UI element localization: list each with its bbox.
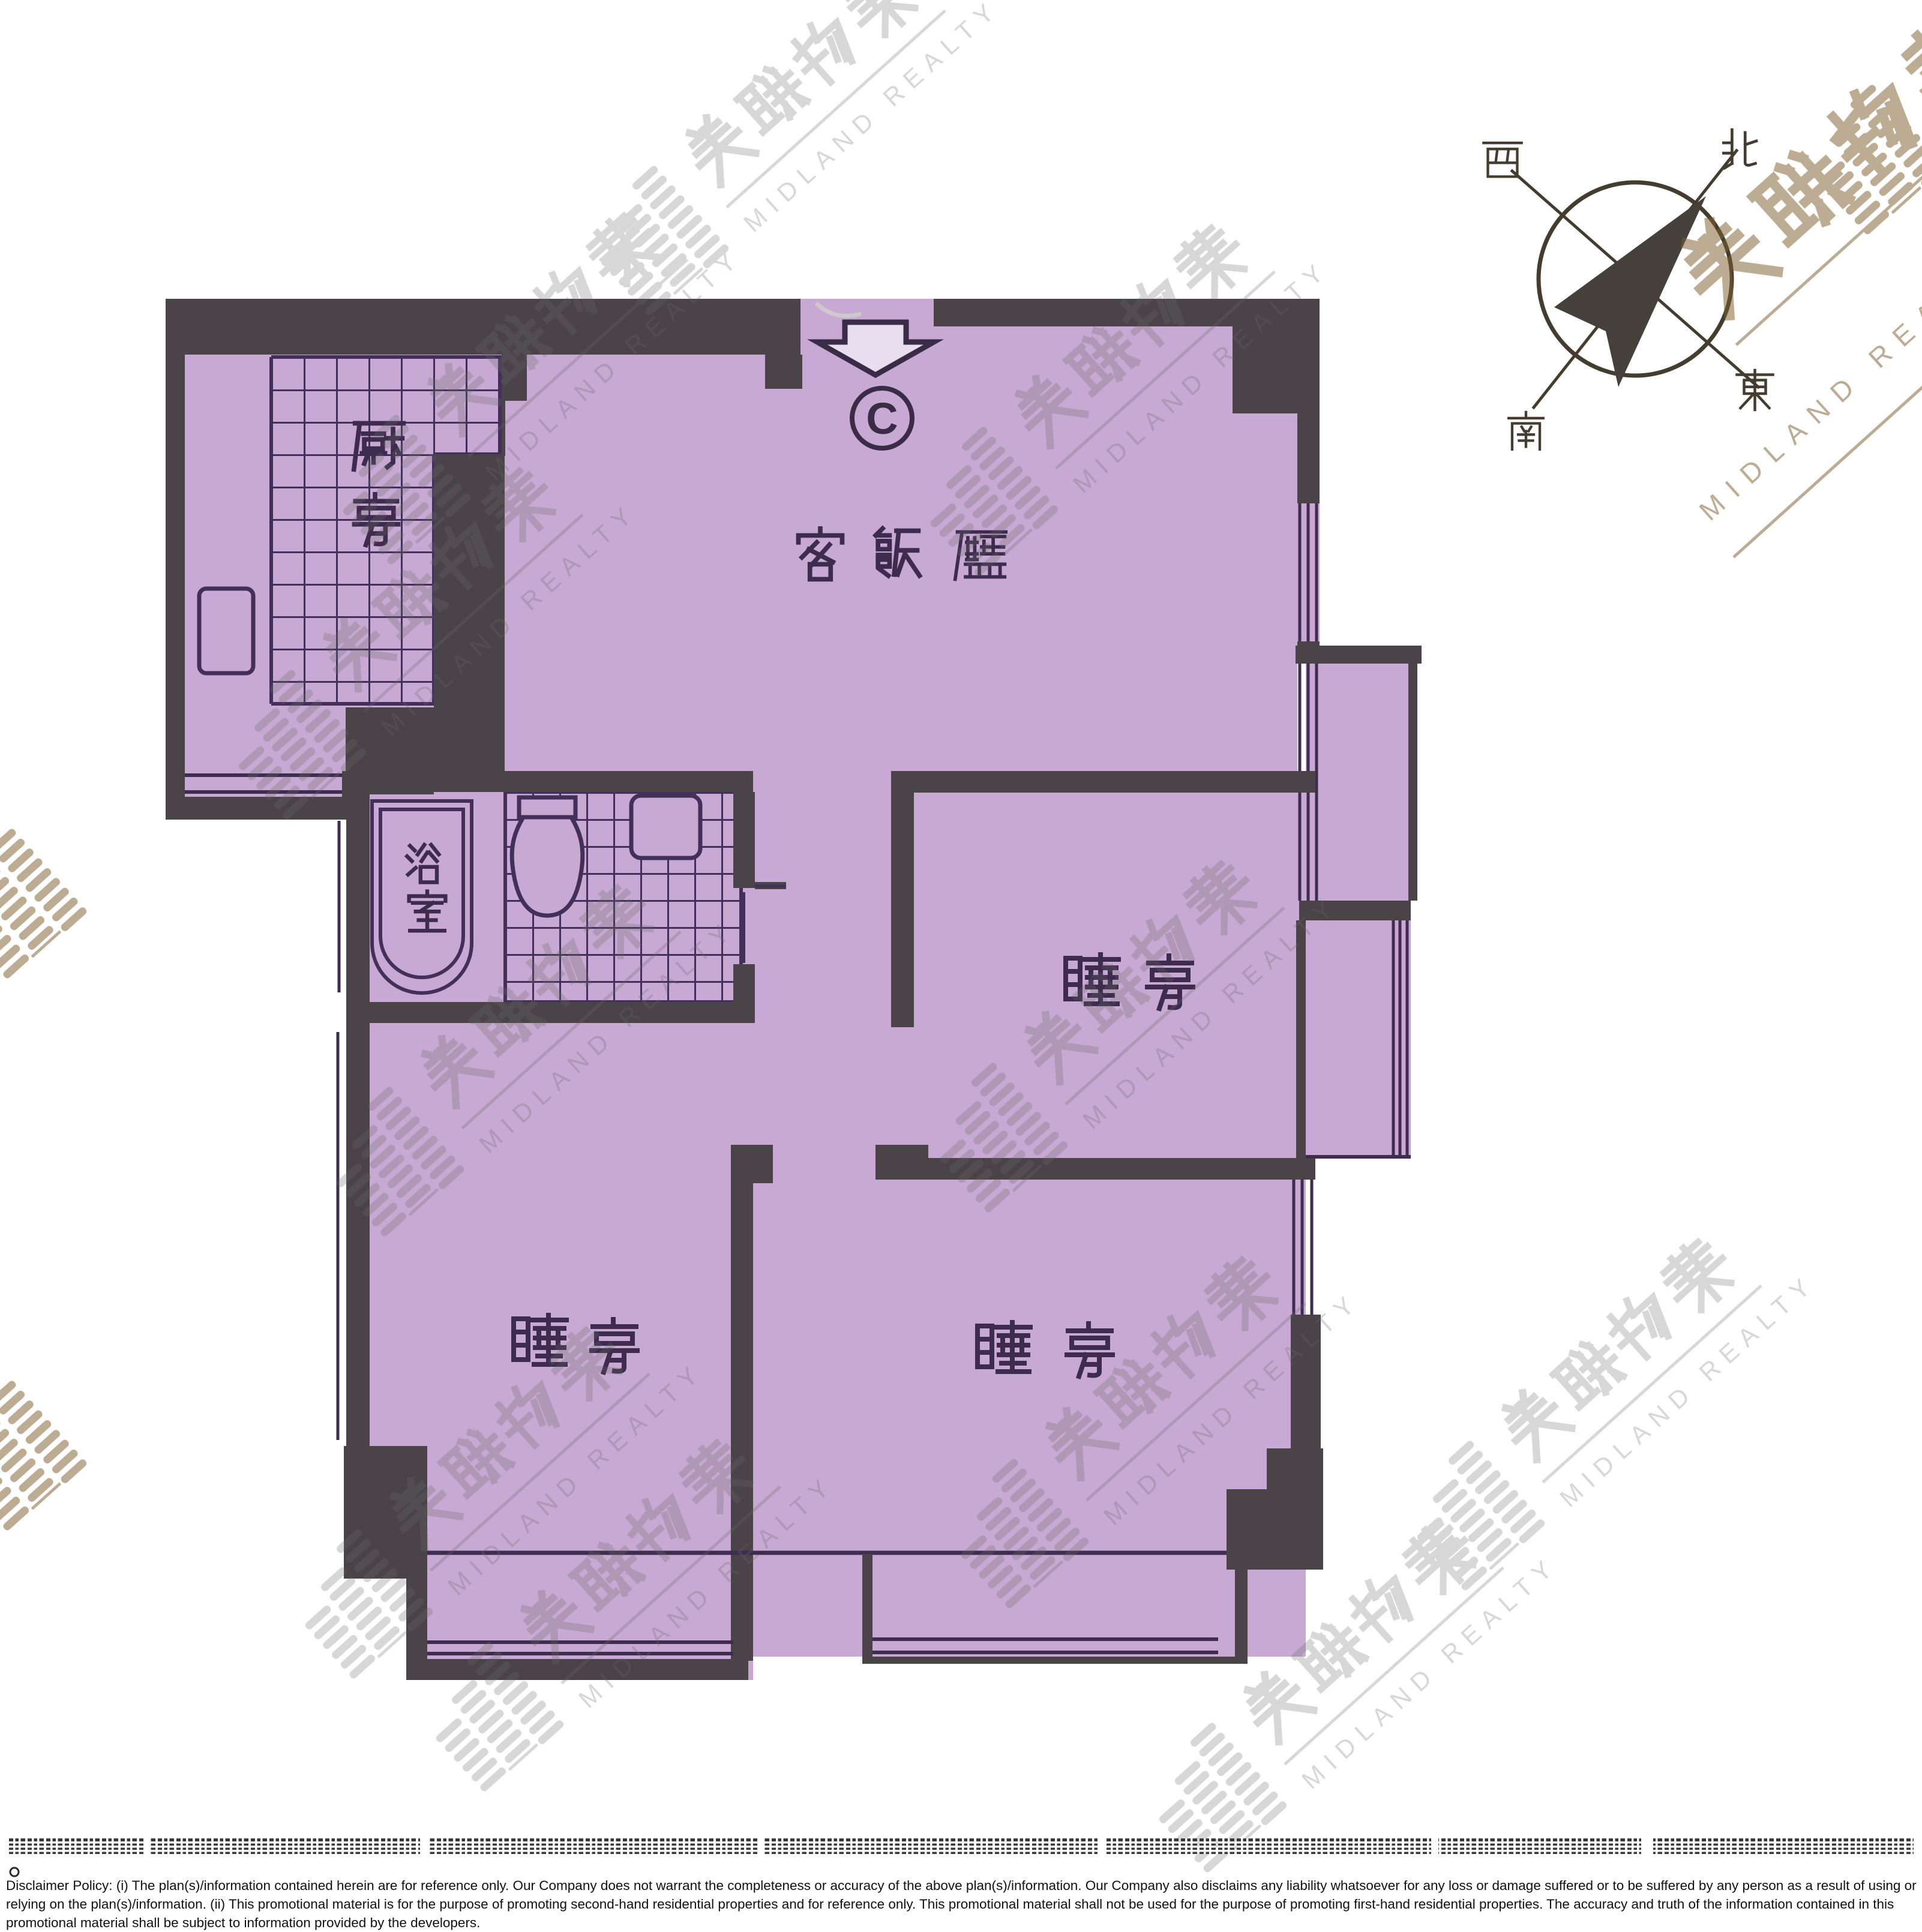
svg-text:Disclaimer Policy: (i) The pla: Disclaimer Policy: (i) The plan(s)/infor…	[6, 1878, 1917, 1893]
svg-text:promotional material shall be: promotional material shall be subject to…	[6, 1915, 480, 1930]
svg-text:relying on the plan(s)/informa: relying on the plan(s)/information. (ii)…	[6, 1897, 1894, 1912]
svg-text:C: C	[866, 394, 898, 443]
